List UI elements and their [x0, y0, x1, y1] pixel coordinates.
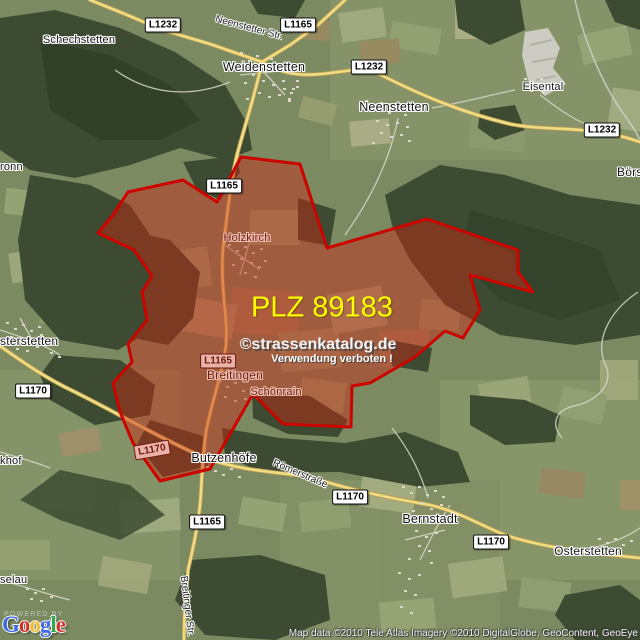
road-sign-l1232-nw: L1232	[145, 18, 181, 33]
plz-region-title: PLZ 89183	[251, 292, 393, 325]
town-label-neenstetten: Neenstetten	[359, 100, 429, 114]
road-sign-l1170-west: L1170	[15, 384, 51, 399]
town-label-sterstetten-clipped: sterstetten	[0, 334, 58, 348]
road-sign-l1165-ne: L1165	[280, 18, 316, 33]
town-label-eisental: Eisental	[523, 81, 564, 93]
town-label-boers-clipped: Börs	[617, 165, 640, 179]
satellite-map[interactable]: Schechstetten Weidenstetten Neenstetten …	[0, 0, 640, 640]
road-sign-l1165-breitingen: L1165	[200, 354, 236, 369]
road-sign-l1170-bernstadt-east: L1170	[473, 535, 509, 550]
watermark-strassenkatalog: ©strassenkatalog.de	[240, 336, 397, 354]
town-label-weidenstetten: Weidenstetten	[223, 60, 305, 74]
road-sign-l1165-holzkirch: L1165	[206, 179, 242, 194]
road-sign-l1232-east: L1232	[584, 123, 620, 138]
google-logo-letter: o	[19, 612, 30, 637]
google-logo-letter: G	[2, 612, 19, 637]
town-label-breitingen: Breitingen	[207, 368, 263, 382]
town-label-bernstadt: Bernstadt	[402, 512, 457, 526]
road-sign-l1165-south: L1165	[189, 515, 225, 530]
google-logo-letter: o	[29, 612, 40, 637]
town-label-ronn-clipped: ronn	[0, 161, 23, 173]
google-logo-letter: e	[56, 612, 65, 637]
town-label-osterstetten: Osterstetten	[554, 544, 622, 558]
town-label-butzenhoefe: Butzenhöfe	[191, 451, 256, 465]
google-logo[interactable]: Google	[2, 612, 65, 638]
town-label-schoenrain: Schönrain	[250, 386, 301, 398]
road-sign-l1170-bernstadt-west: L1170	[332, 490, 368, 505]
watermark-verboten: Verwendung verboten !	[271, 353, 393, 365]
map-attribution: Map data ©2010 Tele Atlas Imagery ©2010 …	[289, 628, 638, 639]
google-logo-letter: g	[40, 612, 51, 637]
town-label-khof-clipped: khof	[0, 455, 22, 467]
town-label-holzkirch: Holzkirch	[223, 232, 270, 244]
road-sign-l1232-mid: L1232	[351, 60, 387, 75]
town-label-schechstetten: Schechstetten	[43, 34, 115, 46]
town-label-selau-clipped: selau	[0, 574, 27, 586]
